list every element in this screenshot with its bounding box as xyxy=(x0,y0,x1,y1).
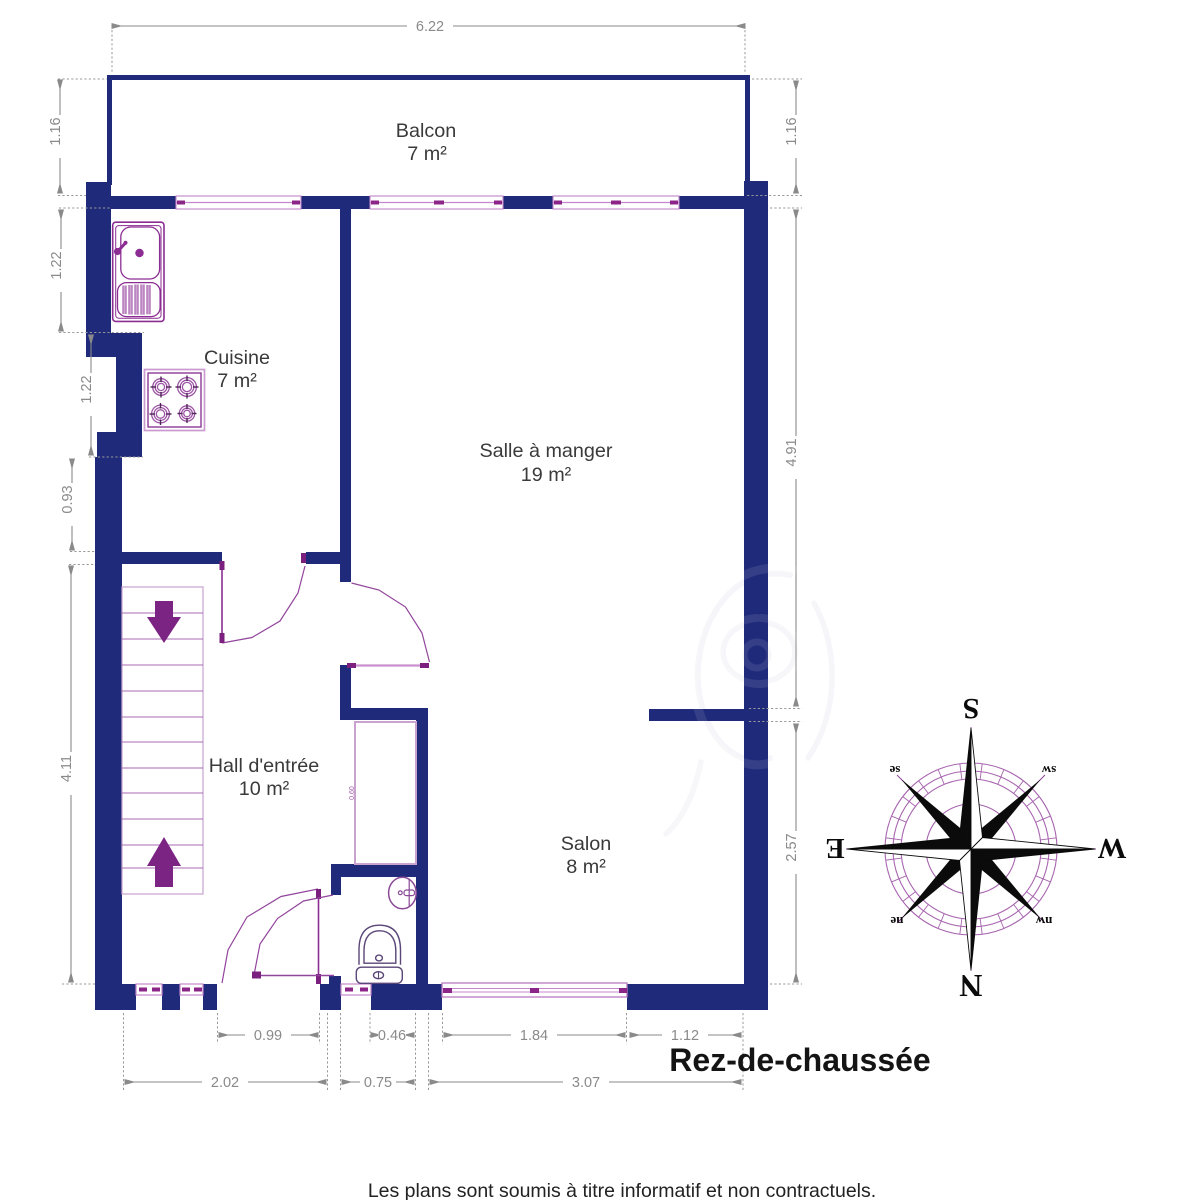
svg-text:W: W xyxy=(1098,832,1127,864)
svg-text:1.16: 1.16 xyxy=(784,117,800,145)
svg-text:0.93: 0.93 xyxy=(60,485,76,513)
svg-text:1.84: 1.84 xyxy=(520,1028,548,1044)
svg-text:nw: nw xyxy=(1035,914,1052,929)
svg-text:2.02: 2.02 xyxy=(211,1075,239,1091)
svg-text:7 m²: 7 m² xyxy=(217,370,257,392)
svg-text:1.22: 1.22 xyxy=(49,251,65,279)
svg-text:ne: ne xyxy=(890,914,903,929)
svg-text:7 m²: 7 m² xyxy=(407,143,447,165)
svg-text:Les plans sont soumis à titre: Les plans sont soumis à titre informatif… xyxy=(368,1180,876,1200)
svg-text:0.75: 0.75 xyxy=(364,1075,392,1091)
svg-text:Hall d'entrée: Hall d'entrée xyxy=(209,755,319,777)
svg-text:Salon: Salon xyxy=(561,833,612,855)
svg-text:0.99: 0.99 xyxy=(254,1028,282,1044)
svg-text:sw: sw xyxy=(1041,763,1056,778)
svg-text:0.60: 0.60 xyxy=(349,786,356,800)
svg-text:Rez-de-chaussée: Rez-de-chaussée xyxy=(669,1042,930,1078)
svg-text:1.16: 1.16 xyxy=(48,117,64,145)
svg-text:se: se xyxy=(889,763,900,778)
svg-text:19 m²: 19 m² xyxy=(521,464,572,486)
svg-text:S: S xyxy=(963,692,980,725)
svg-text:0.46: 0.46 xyxy=(378,1028,406,1044)
svg-text:4.11: 4.11 xyxy=(59,755,75,782)
svg-text:3.07: 3.07 xyxy=(572,1075,600,1091)
svg-text:6.22: 6.22 xyxy=(416,19,444,35)
svg-text:Salle à manger: Salle à manger xyxy=(479,440,612,462)
svg-text:N: N xyxy=(959,968,982,1004)
svg-text:Balcon: Balcon xyxy=(396,120,456,142)
svg-text:Cuisine: Cuisine xyxy=(204,347,270,369)
svg-text:E: E xyxy=(825,832,844,864)
svg-text:4.91: 4.91 xyxy=(784,438,800,466)
svg-text:2.57: 2.57 xyxy=(784,833,800,861)
svg-text:8 m²: 8 m² xyxy=(566,856,606,878)
svg-text:1.22: 1.22 xyxy=(79,375,95,403)
svg-text:10 m²: 10 m² xyxy=(239,778,290,800)
